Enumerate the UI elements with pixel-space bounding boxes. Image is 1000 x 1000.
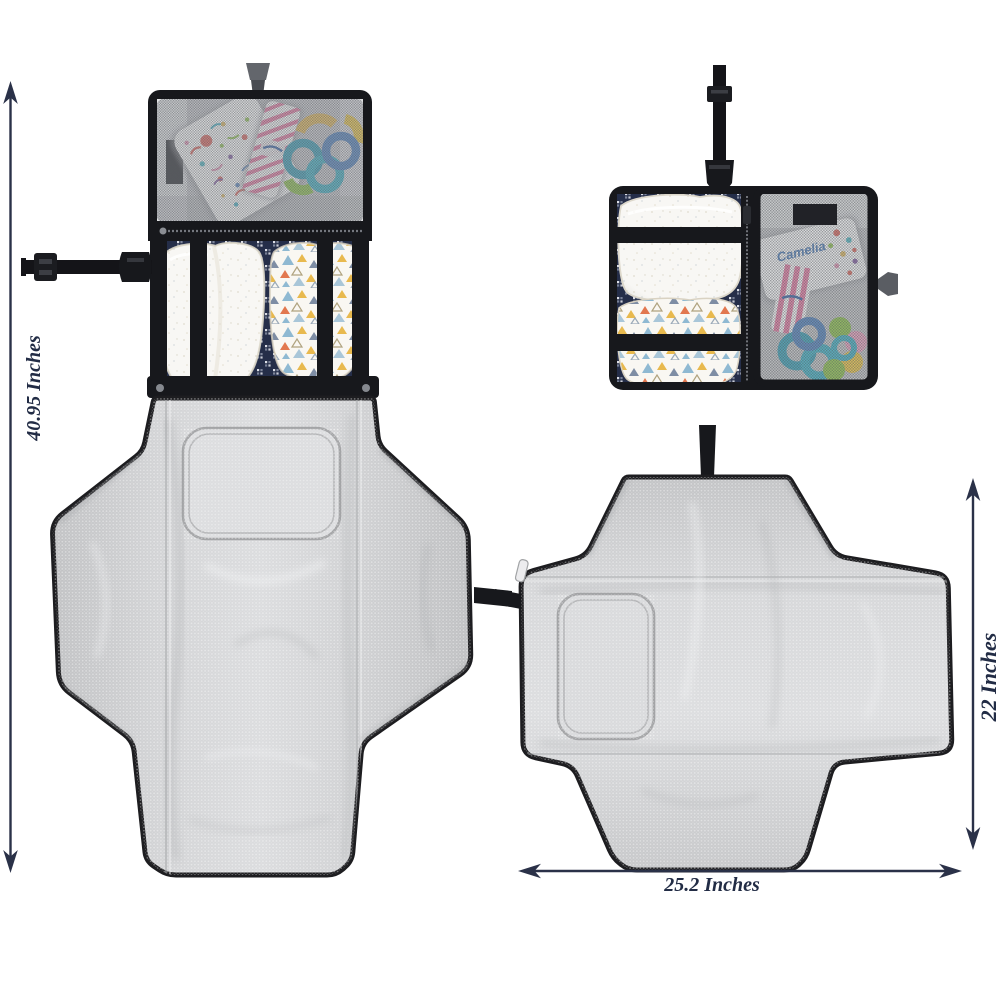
svg-text:25.2 Inches: 25.2 Inches <box>663 874 760 896</box>
svg-text:22 Inches: 22 Inches <box>976 633 1000 723</box>
svg-text:40.95 Inches: 40.95 Inches <box>23 335 45 442</box>
